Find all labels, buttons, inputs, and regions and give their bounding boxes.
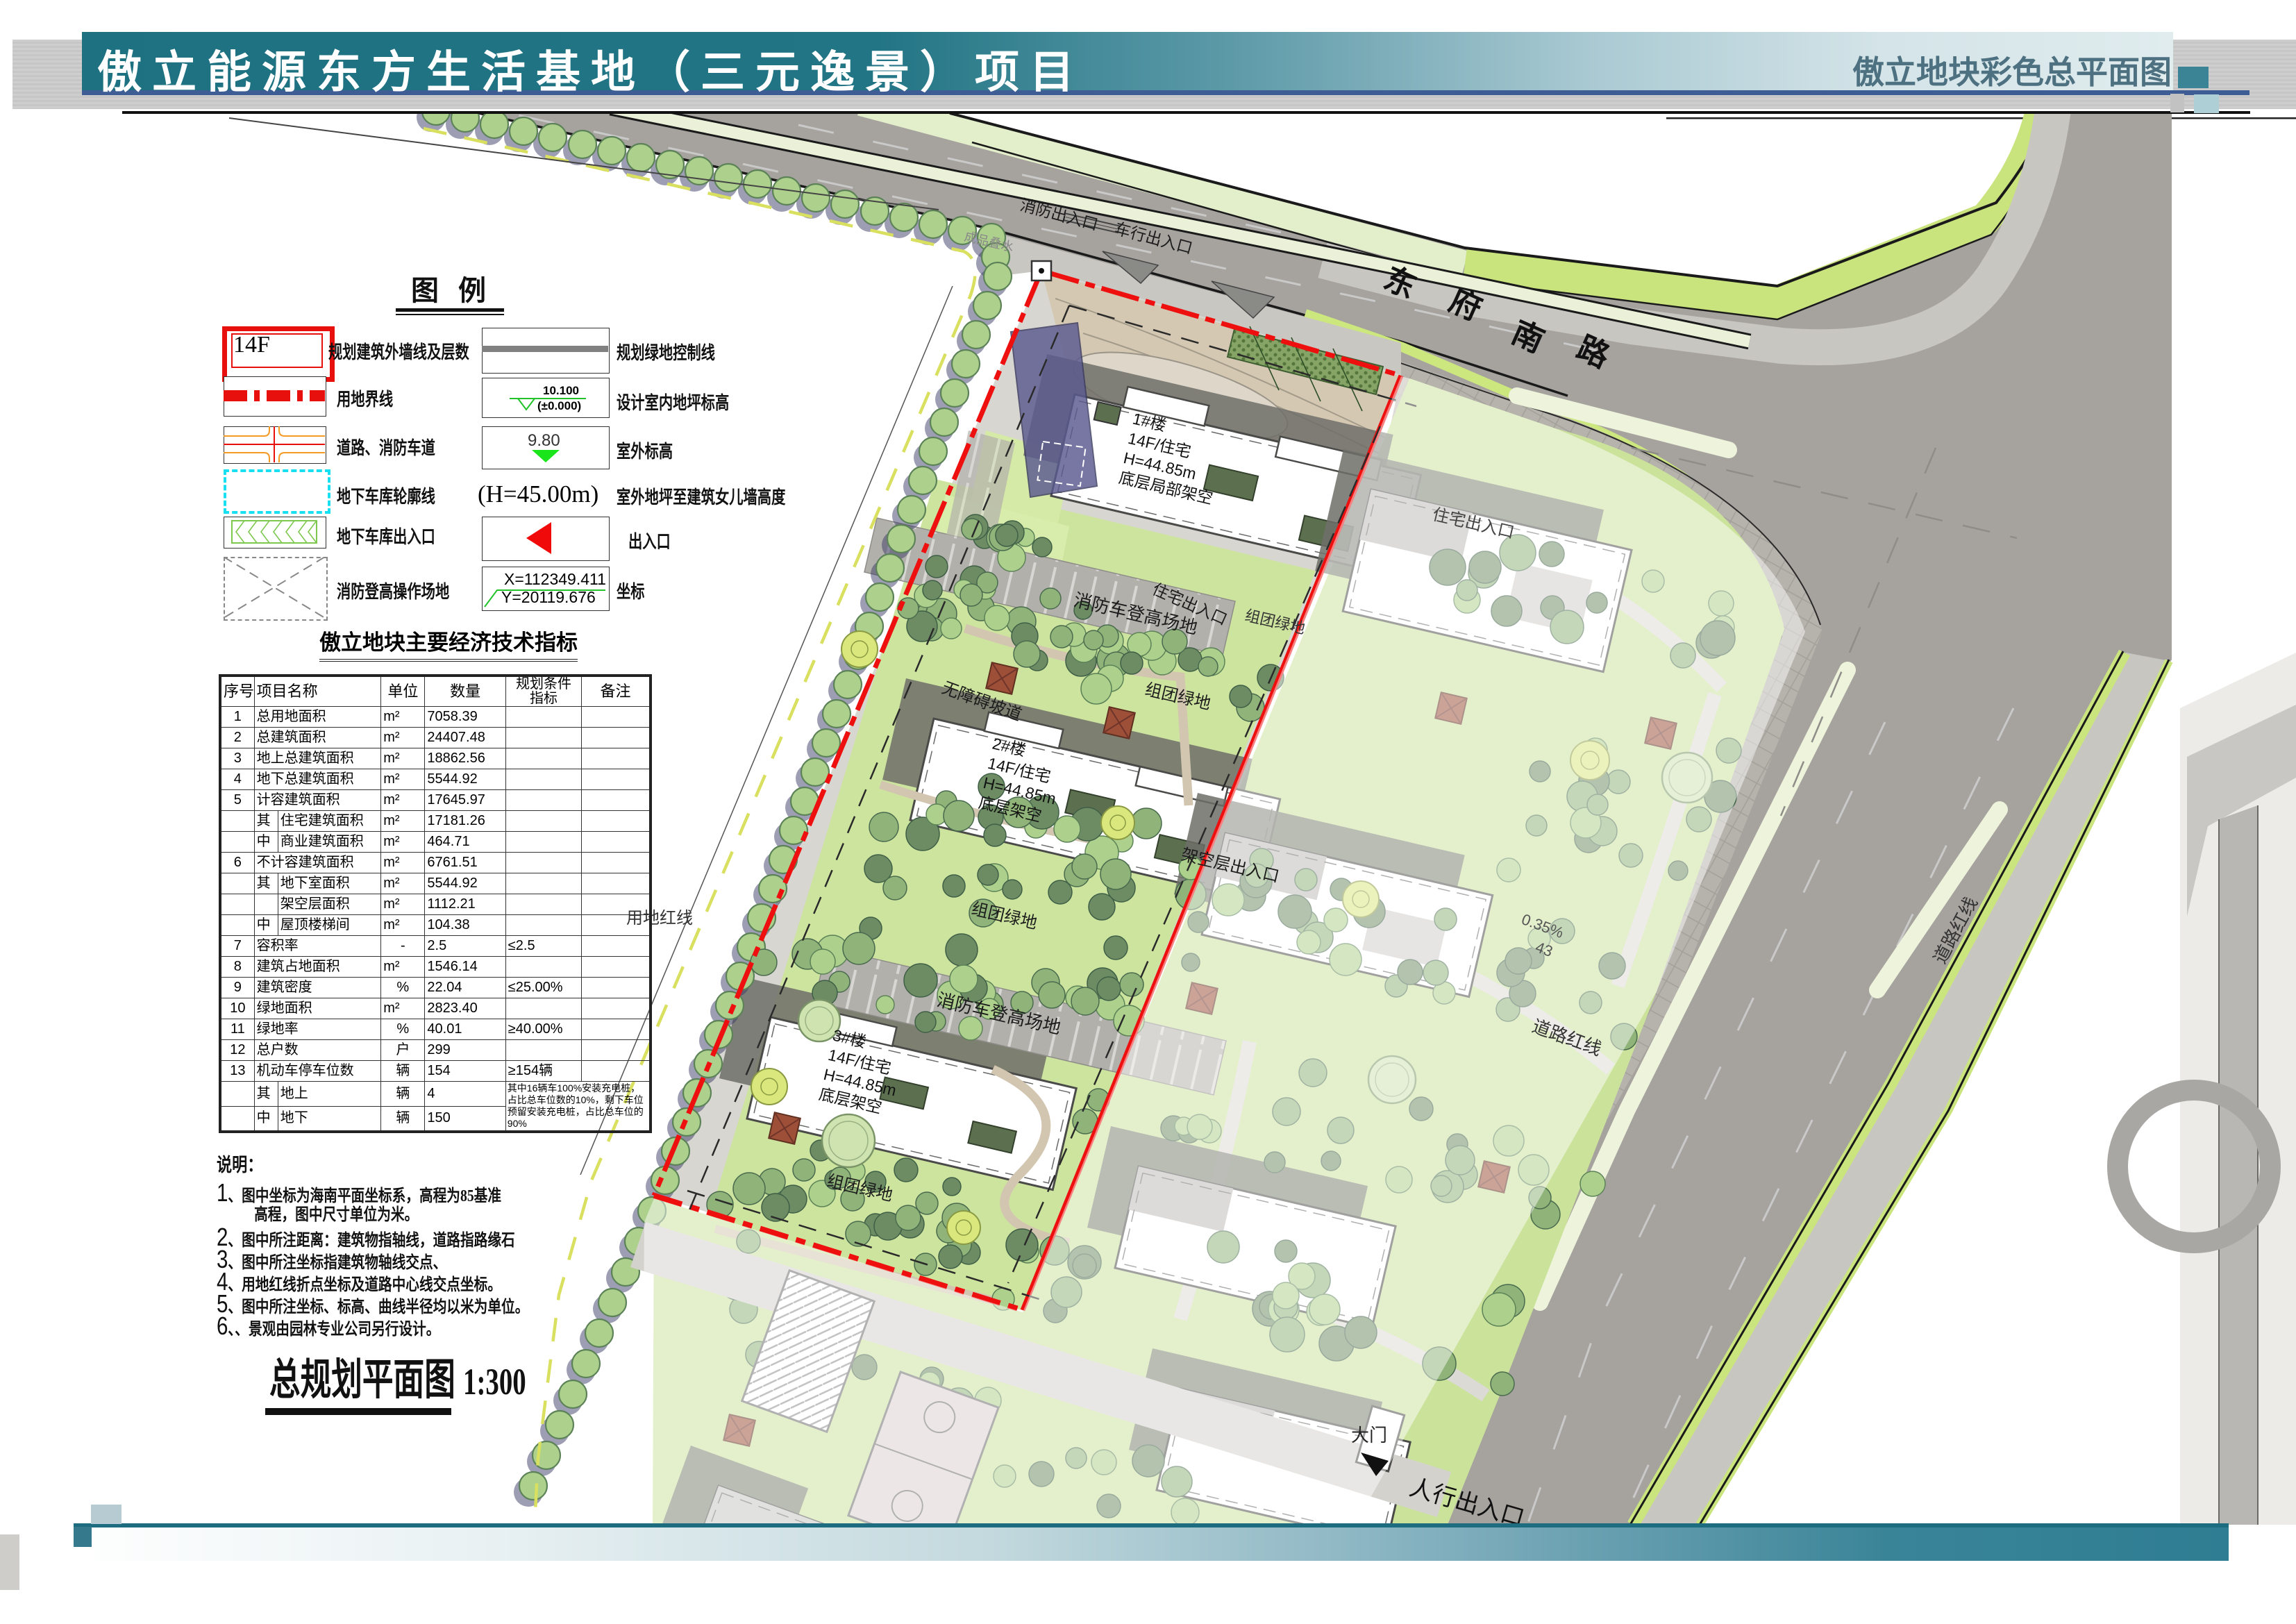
svg-text:10.100: 10.100 (543, 384, 579, 397)
svg-text:X=112349.411: X=112349.411 (504, 570, 606, 588)
svg-text:9.80: 9.80 (528, 431, 560, 450)
svg-text:大门: 大门 (1351, 1425, 1387, 1446)
svg-text:Y=20119.676: Y=20119.676 (501, 588, 596, 606)
svg-text:(±0.000): (±0.000) (537, 399, 581, 412)
